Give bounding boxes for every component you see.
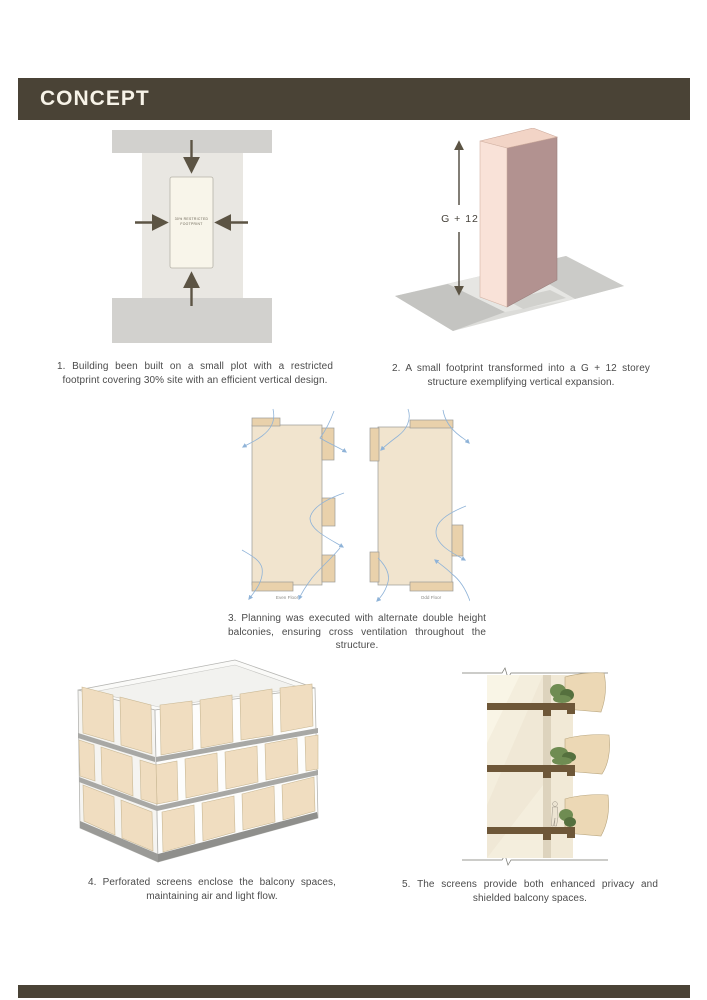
page-title: CONCEPT [18,87,150,111]
caption-5: 5. The screens provide both enhanced pri… [402,878,658,905]
odd-floor-label: Odd Floor [421,595,442,600]
diagram-screen-axonometric [55,658,355,873]
diagram-balcony-section [458,665,613,870]
page-header-bar: CONCEPT [18,78,690,120]
tower-height-label: G + 12 [441,213,479,225]
footprint-label-line1: 30% RESTRICTED [175,217,209,221]
caption-4: 4. Perforated screens enclose the balcon… [88,876,336,903]
caption-3: 3. Planning was executed with alternate … [228,612,486,653]
diagram-floor-plans: Even Floor Odd Floor [240,408,470,603]
even-floor-label: Even Floor [276,595,299,600]
tower-front-face [480,141,507,307]
footer-bar [18,985,690,998]
tower-side-face [507,137,557,307]
caption-2: 2. A small footprint transformed into a … [392,362,650,389]
diagram-restricted-footprint: 30% RESTRICTED FOOTPRINT [105,125,285,353]
concept-sheet-page: CONCEPT 30% RESTRICTED FOOTPRINT [0,0,707,1000]
caption-1: 1. Building been built on a small plot w… [57,360,333,387]
diagram-vertical-tower: G + 12 [390,128,635,353]
footprint-label-line2: FOOTPRINT [180,222,202,226]
tower-mass [480,128,557,307]
even-floor-plan [252,418,335,591]
